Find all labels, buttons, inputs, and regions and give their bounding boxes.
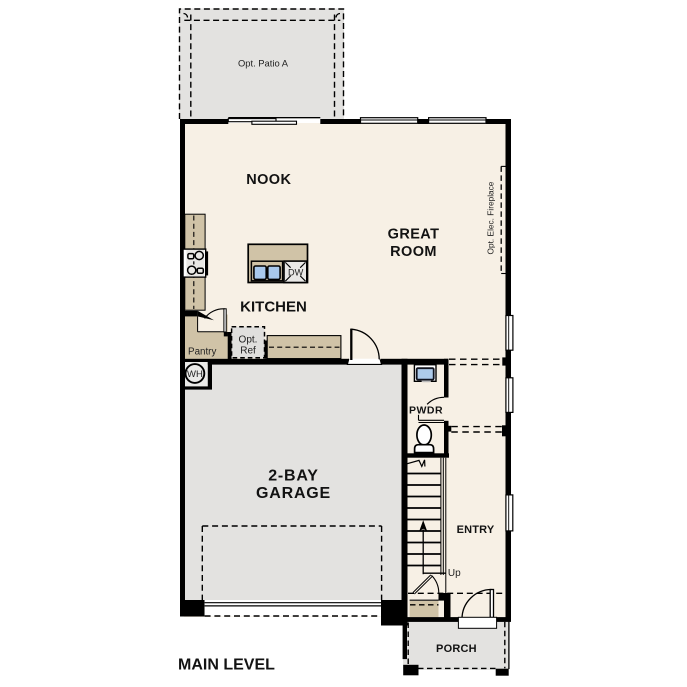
svg-text:Up: Up bbox=[448, 568, 461, 579]
svg-text:PWDR: PWDR bbox=[409, 404, 443, 416]
svg-text:NOOK: NOOK bbox=[246, 172, 291, 188]
svg-text:Opt. Patio A: Opt. Patio A bbox=[238, 57, 289, 68]
svg-text:GREAT: GREAT bbox=[388, 227, 440, 243]
svg-text:WH: WH bbox=[187, 369, 203, 380]
svg-text:MAIN LEVEL: MAIN LEVEL bbox=[178, 657, 275, 674]
svg-text:2-BAY: 2-BAY bbox=[268, 468, 319, 485]
svg-text:Opt.: Opt. bbox=[239, 335, 258, 346]
svg-text:ROOM: ROOM bbox=[390, 244, 437, 260]
svg-text:DW: DW bbox=[288, 267, 304, 277]
svg-text:Opt. Elec. Fireplace: Opt. Elec. Fireplace bbox=[486, 181, 496, 254]
svg-text:KITCHEN: KITCHEN bbox=[240, 298, 307, 315]
svg-text:GARAGE: GARAGE bbox=[256, 485, 331, 502]
svg-text:Pantry: Pantry bbox=[188, 347, 216, 358]
svg-text:PORCH: PORCH bbox=[436, 643, 477, 655]
svg-text:ENTRY: ENTRY bbox=[457, 524, 495, 536]
svg-text:Ref: Ref bbox=[240, 346, 256, 357]
